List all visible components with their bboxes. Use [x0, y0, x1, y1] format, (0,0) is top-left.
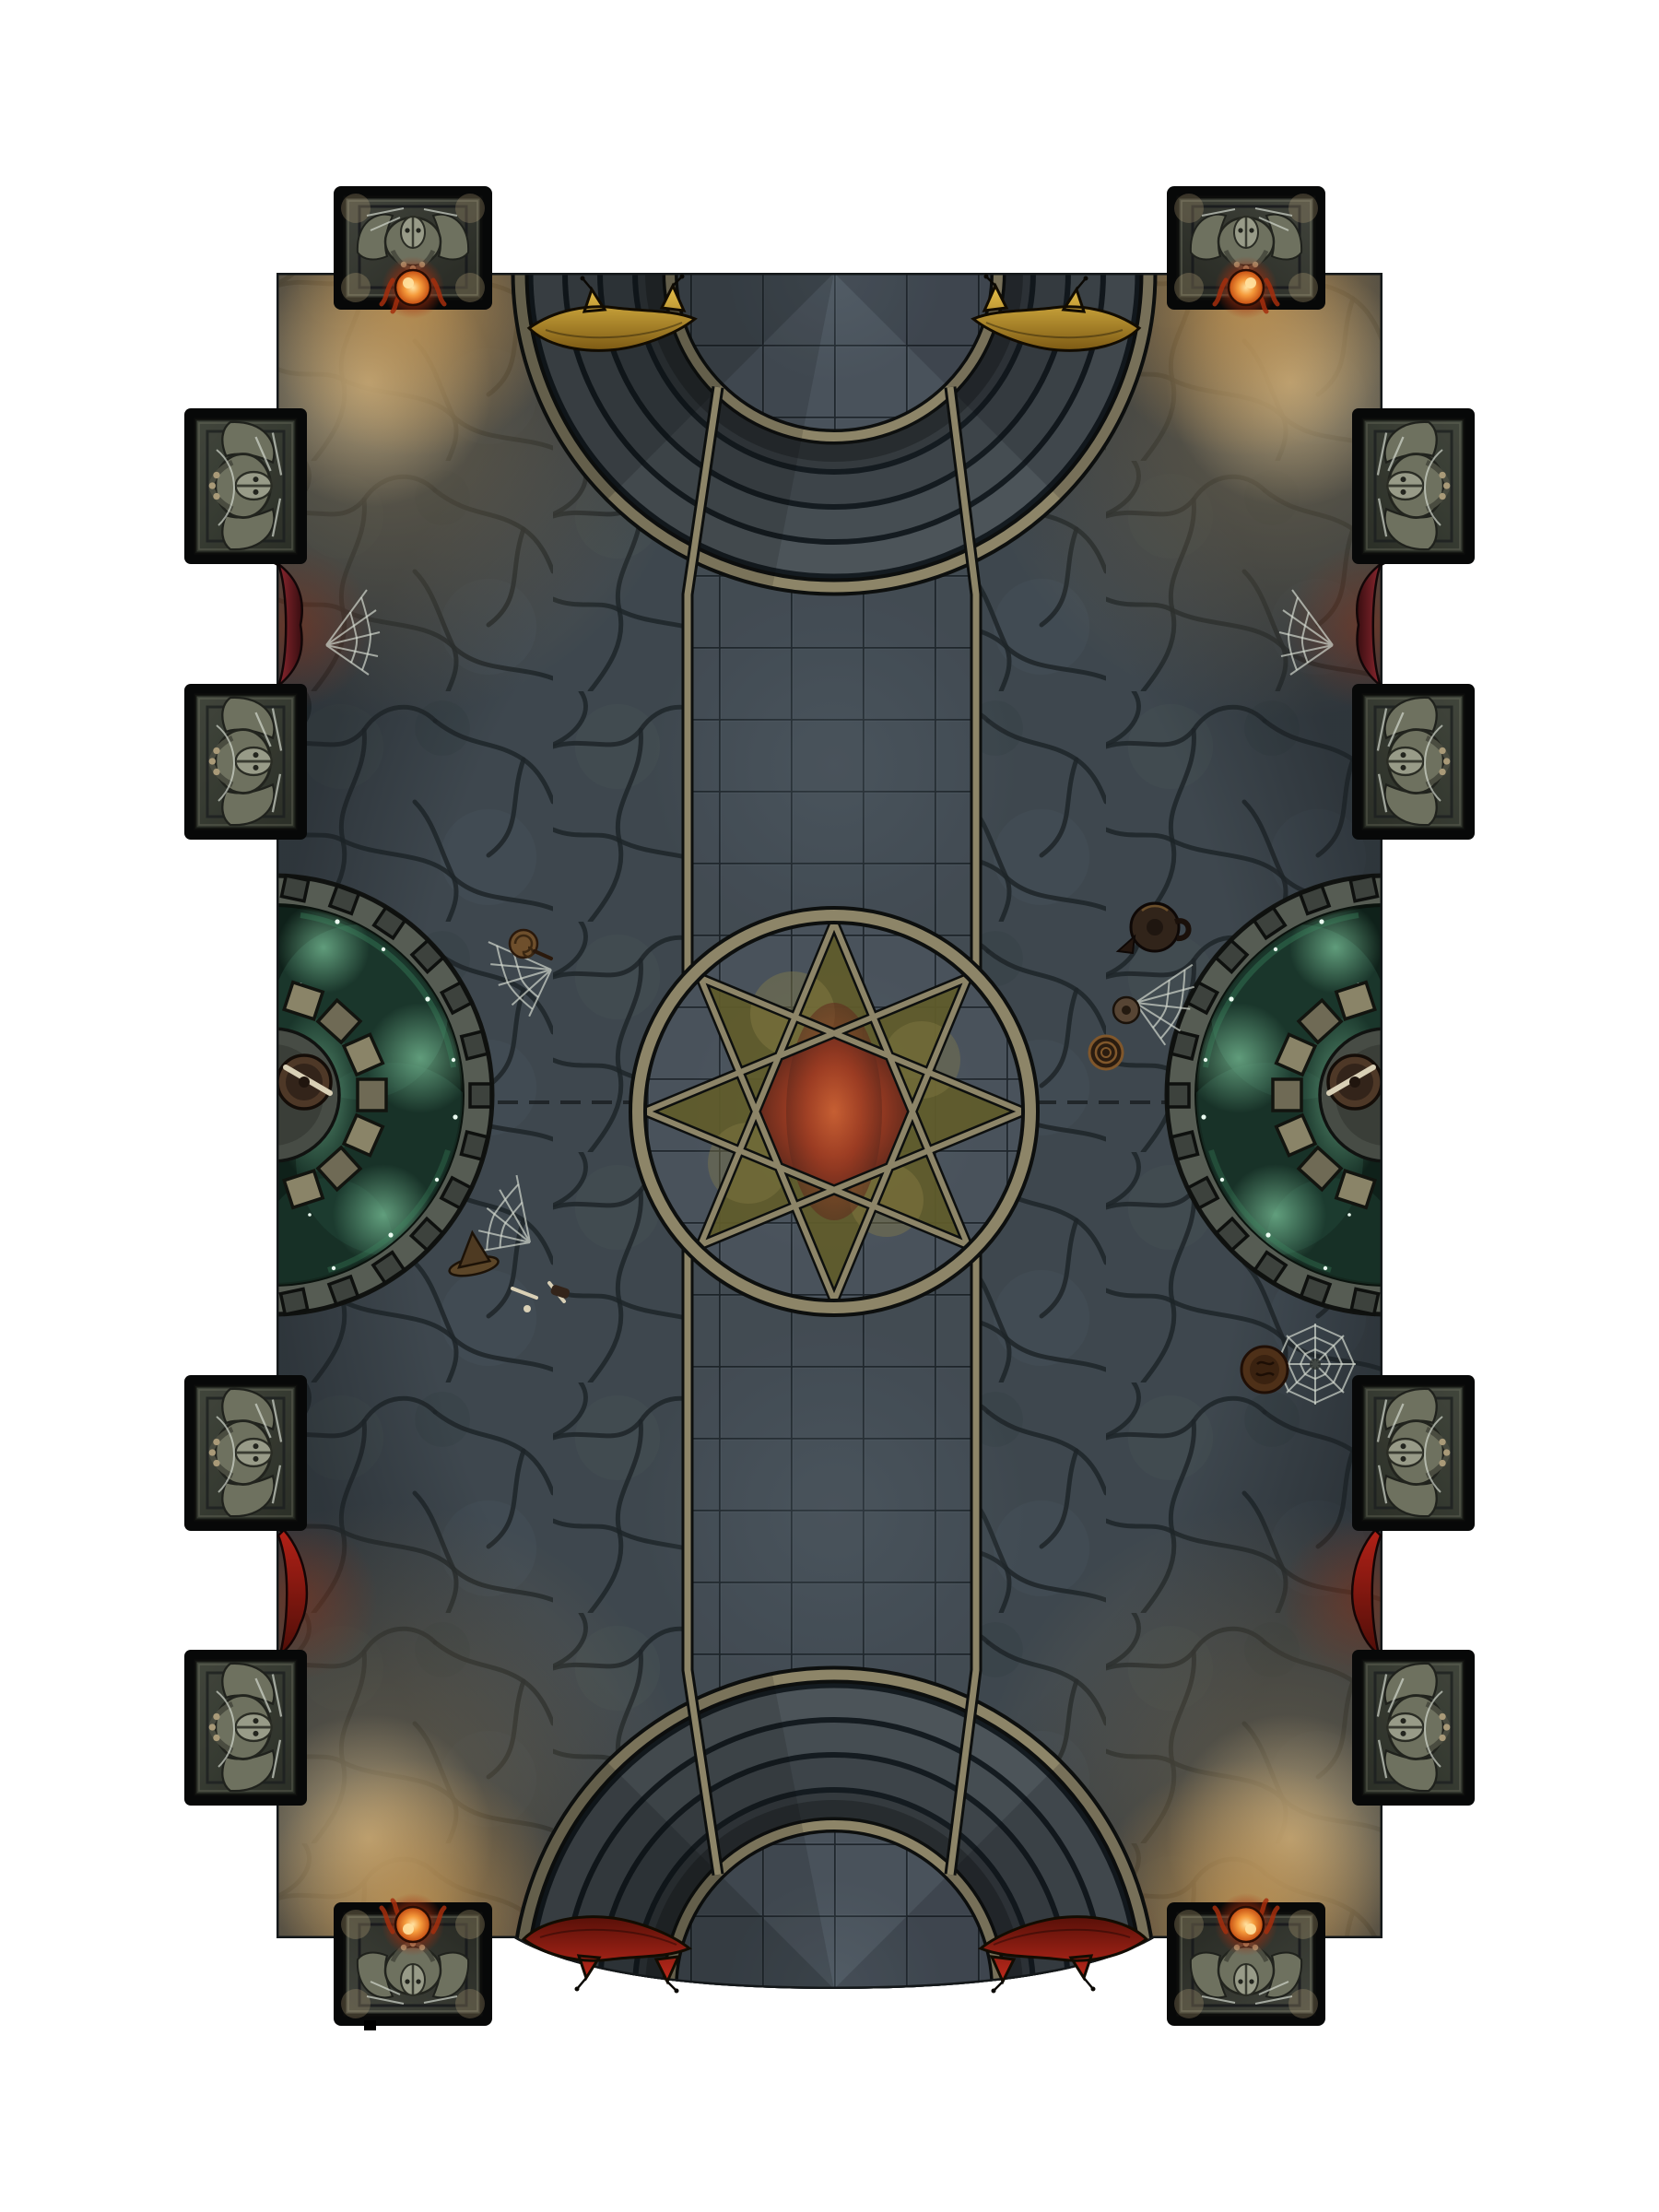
pillar-east-1: [1352, 408, 1475, 564]
rope-coil: [1089, 1036, 1123, 1069]
pillar-west-1: [184, 408, 307, 564]
pillar-brazier-northeast: [1167, 186, 1325, 319]
cup: [1113, 997, 1139, 1023]
octagram-star: [645, 923, 1023, 1300]
battle-map-page: [0, 0, 1659, 2212]
pillar-brazier-northwest: [334, 186, 492, 319]
summoning-circle: [638, 915, 1030, 1308]
pillar-east-4: [1352, 1650, 1475, 1806]
pillar-west-4: [184, 1650, 307, 1806]
pillar-brazier-southeast: [1167, 1893, 1325, 2026]
pillar-west-2: [184, 684, 307, 840]
map-alignment-tab: [364, 2020, 376, 2030]
pillar-east-2: [1352, 684, 1475, 840]
pillar-west-3: [184, 1375, 307, 1531]
chamber-floor: [83, 0, 1585, 2212]
engraved-plate: [1241, 1347, 1288, 1393]
north-stairs: [513, 0, 1155, 587]
battle-map: [0, 0, 1659, 2212]
pillar-brazier-southwest: [334, 1893, 492, 2026]
pillar-east-3: [1352, 1375, 1475, 1531]
